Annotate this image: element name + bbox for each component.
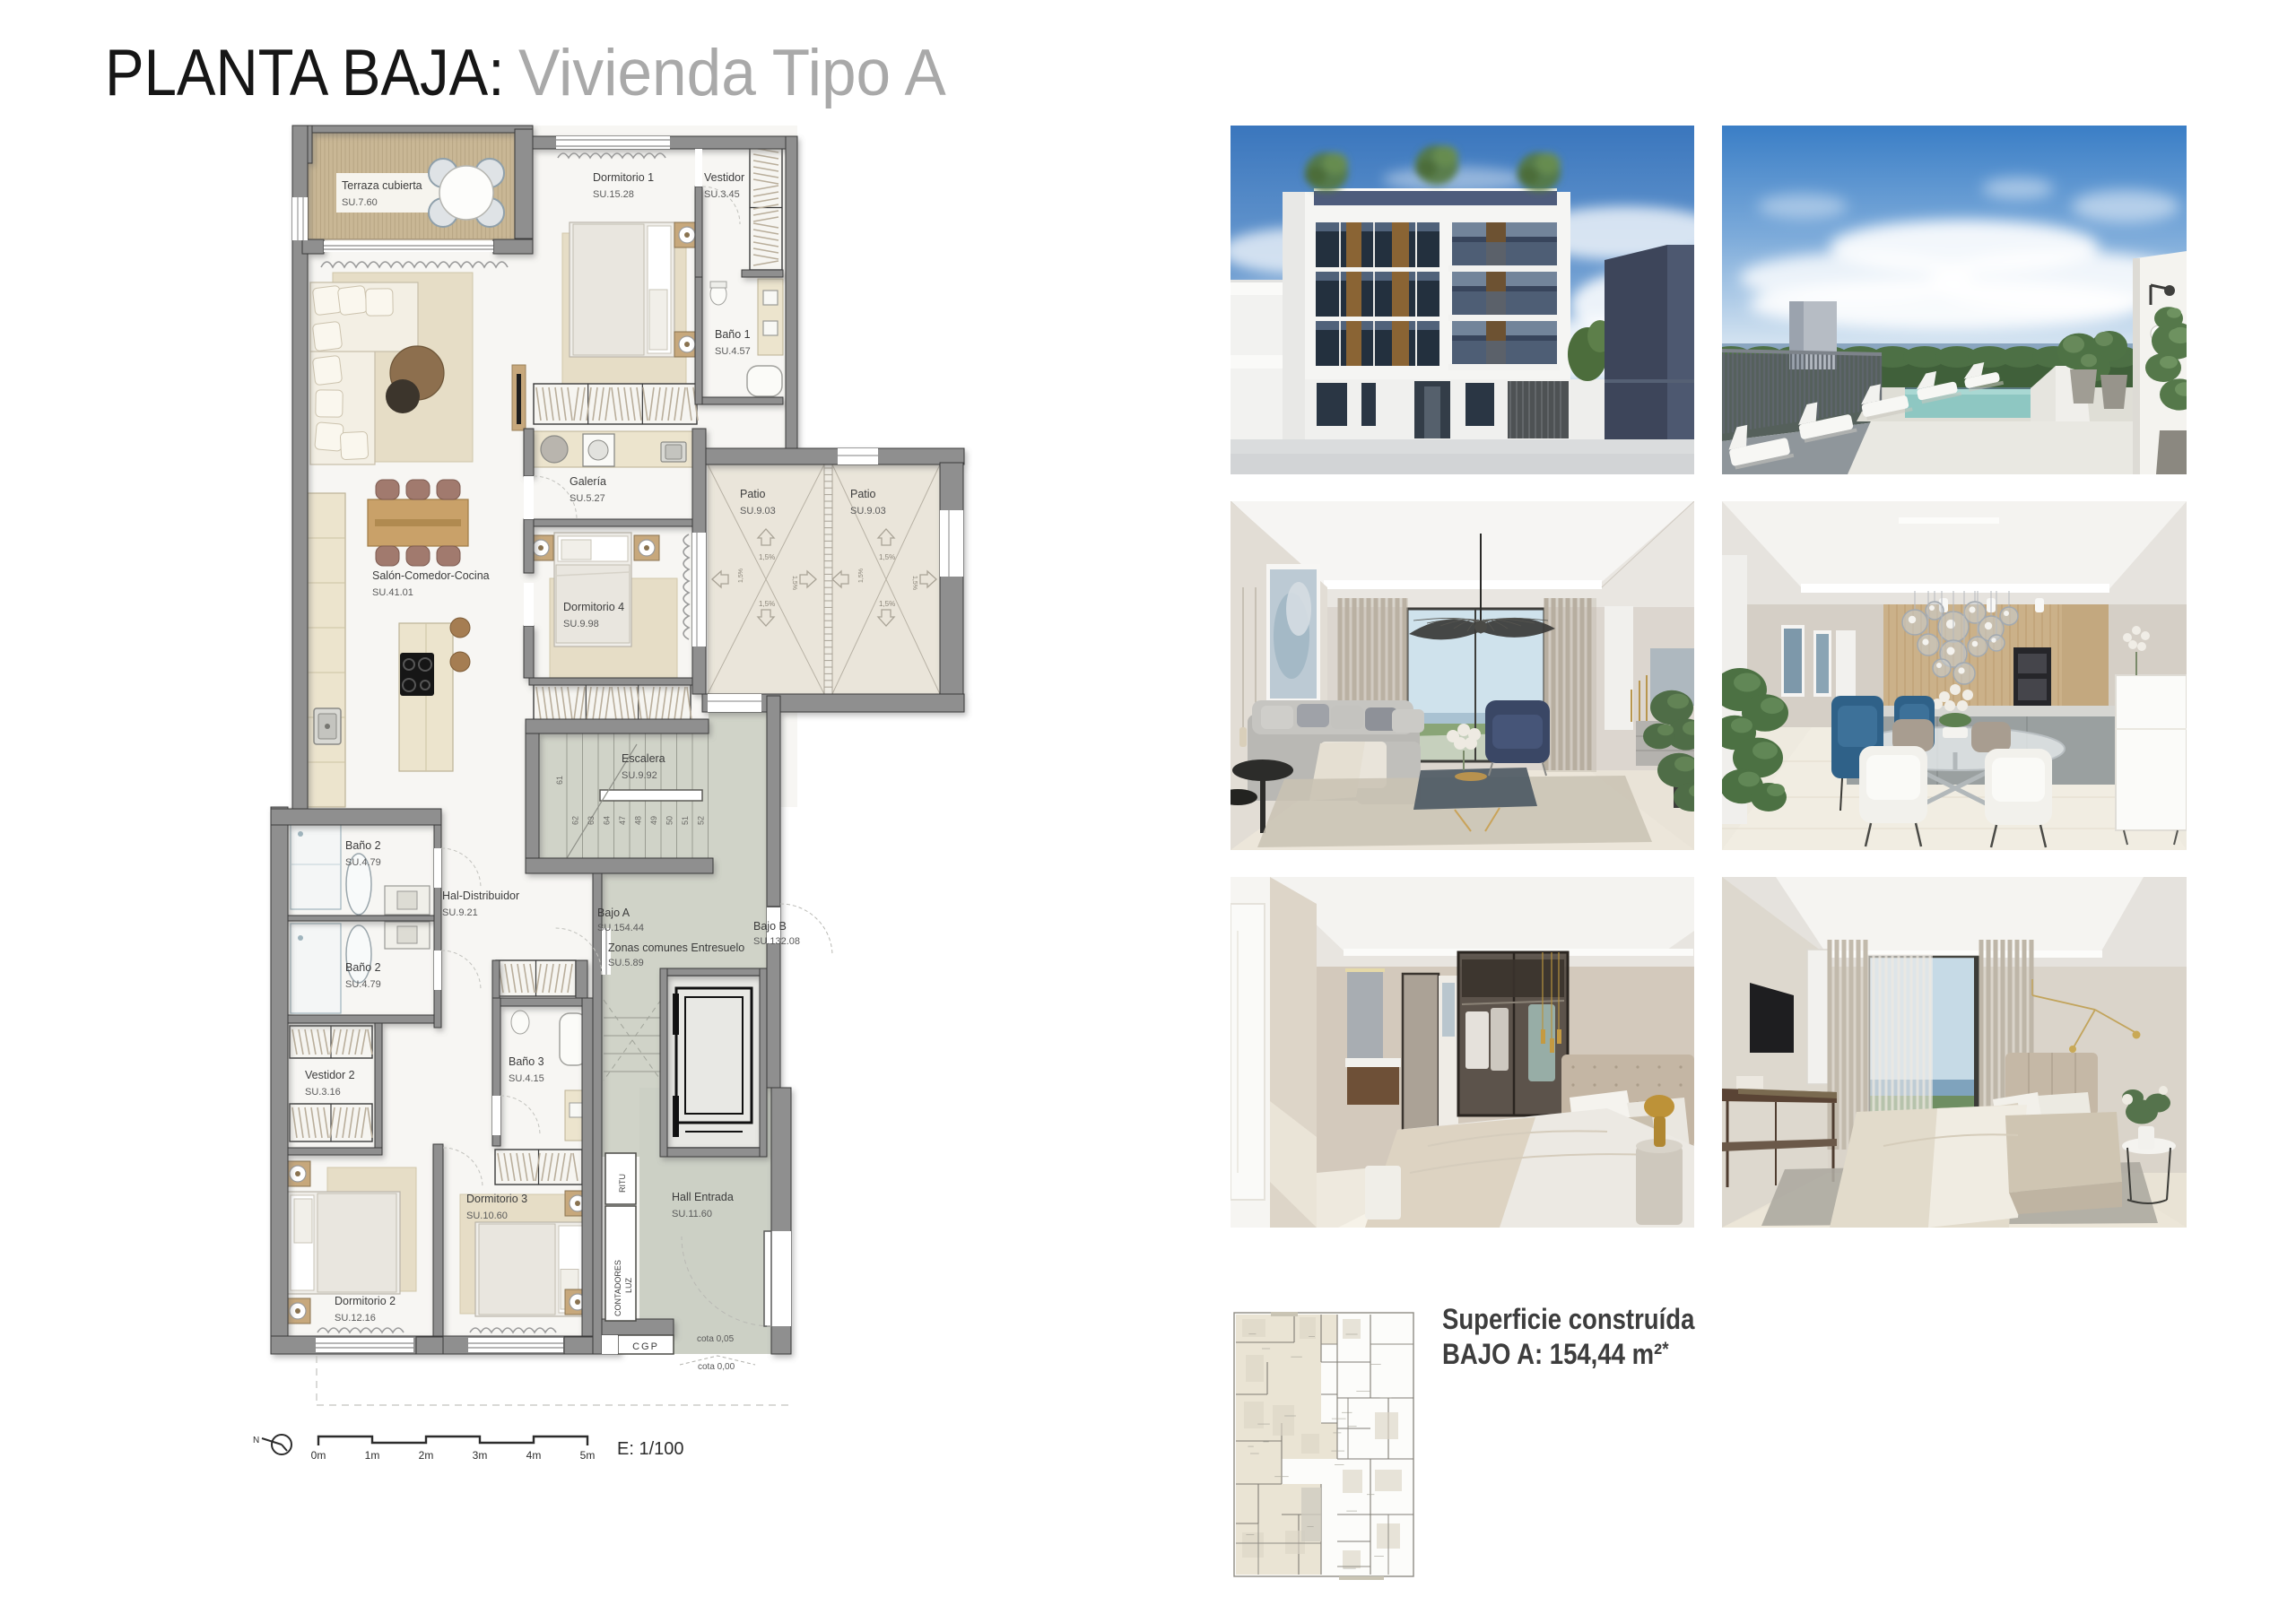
svg-text:SU.9.03: SU.9.03 [740, 506, 776, 516]
svg-text:52: 52 [697, 816, 706, 825]
svg-text:Escalera: Escalera [622, 752, 665, 765]
svg-text:SU.15.28: SU.15.28 [593, 189, 634, 200]
svg-text:N: N [253, 1436, 259, 1445]
svg-text:3m: 3m [473, 1449, 488, 1462]
svg-text:CGP: CGP [632, 1341, 659, 1352]
svg-text:Vestidor 2: Vestidor 2 [305, 1069, 355, 1081]
svg-text:Baño 3: Baño 3 [509, 1055, 544, 1068]
svg-text:1,5%: 1,5% [911, 576, 918, 590]
svg-text:Salón-Comedor-Cocina: Salón-Comedor-Cocina [372, 569, 490, 582]
svg-text:Dormitorio 2: Dormitorio 2 [335, 1295, 396, 1307]
svg-text:SU.4.57: SU.4.57 [715, 346, 751, 357]
svg-text:LUZ: LUZ [624, 1277, 633, 1293]
svg-text:SU.154.44: SU.154.44 [597, 923, 644, 933]
svg-text:1,5%: 1,5% [858, 568, 865, 583]
svg-text:SU.9.92: SU.9.92 [622, 770, 657, 781]
svg-text:63: 63 [587, 816, 596, 825]
svg-text:SU.4.15: SU.4.15 [509, 1073, 544, 1084]
svg-text:Galería: Galería [570, 475, 606, 488]
svg-text:1,5%: 1,5% [791, 576, 797, 590]
svg-text:62: 62 [571, 816, 580, 825]
svg-text:64: 64 [603, 816, 612, 825]
svg-text:2m: 2m [419, 1449, 434, 1462]
svg-text:1,5%: 1,5% [879, 553, 895, 561]
svg-text:1,5%: 1,5% [759, 553, 775, 561]
svg-text:Dormitorio 3: Dormitorio 3 [466, 1193, 527, 1205]
svg-text:SU.9.03: SU.9.03 [850, 506, 886, 516]
svg-text:CONTADORES: CONTADORES [613, 1260, 622, 1316]
svg-text:cota 0,05: cota 0,05 [697, 1334, 735, 1344]
svg-text:49: 49 [649, 816, 658, 825]
svg-text:Patio: Patio [850, 488, 876, 500]
svg-text:1,5%: 1,5% [879, 600, 895, 608]
svg-text:SU.9.21: SU.9.21 [442, 907, 478, 918]
svg-text:Zonas comunes Entresuelo: Zonas comunes Entresuelo [608, 942, 744, 954]
svg-text:Terraza cubierta: Terraza cubierta [342, 179, 422, 192]
svg-text:5m: 5m [580, 1449, 596, 1462]
svg-text:50: 50 [665, 816, 674, 825]
svg-text:SU.3.45: SU.3.45 [704, 189, 740, 200]
svg-text:RITU: RITU [618, 1174, 627, 1193]
svg-text:Dormitorio 1: Dormitorio 1 [593, 171, 654, 184]
svg-text:Bajo B: Bajo B [753, 920, 787, 933]
svg-text:SU.7.60: SU.7.60 [342, 197, 378, 208]
svg-text:SU.9.98: SU.9.98 [563, 619, 599, 629]
svg-text:Baño 2: Baño 2 [345, 961, 381, 974]
svg-text:SU.3.16: SU.3.16 [305, 1087, 341, 1098]
svg-text:Dormitorio 4: Dormitorio 4 [563, 601, 624, 613]
svg-text:SU.10.60: SU.10.60 [466, 1211, 508, 1221]
svg-text:Bajo A: Bajo A [597, 907, 631, 919]
svg-text:1,5%: 1,5% [738, 568, 744, 583]
svg-text:4m: 4m [526, 1449, 542, 1462]
svg-text:SU.4.79: SU.4.79 [345, 857, 381, 868]
svg-text:61: 61 [555, 776, 564, 785]
svg-text:0m: 0m [311, 1449, 326, 1462]
svg-text:SU.5.27: SU.5.27 [570, 493, 605, 504]
svg-text:47: 47 [618, 816, 627, 825]
svg-text:SU.5.89: SU.5.89 [608, 958, 644, 968]
svg-text:Baño 2: Baño 2 [345, 839, 381, 852]
svg-text:SU.12.16: SU.12.16 [335, 1313, 376, 1324]
svg-text:E: 1/100: E: 1/100 [617, 1439, 684, 1459]
svg-text:SU.11.60: SU.11.60 [672, 1209, 712, 1219]
svg-text:Baño 1: Baño 1 [715, 328, 751, 341]
svg-text:SU.4.79: SU.4.79 [345, 979, 381, 990]
svg-text:SU.41.01: SU.41.01 [372, 587, 413, 598]
svg-text:1,5%: 1,5% [759, 600, 775, 608]
svg-text:1m: 1m [365, 1449, 380, 1462]
svg-text:cota 0,00: cota 0,00 [698, 1362, 735, 1372]
svg-text:SU.132.08: SU.132.08 [753, 936, 800, 947]
svg-text:Vestidor: Vestidor [704, 171, 744, 184]
svg-text:Patio: Patio [740, 488, 766, 500]
svg-text:Hall Entrada: Hall Entrada [672, 1191, 734, 1203]
svg-text:51: 51 [681, 816, 690, 825]
svg-text:Hal-Distribuidor: Hal-Distribuidor [442, 890, 519, 902]
svg-text:48: 48 [634, 816, 643, 825]
